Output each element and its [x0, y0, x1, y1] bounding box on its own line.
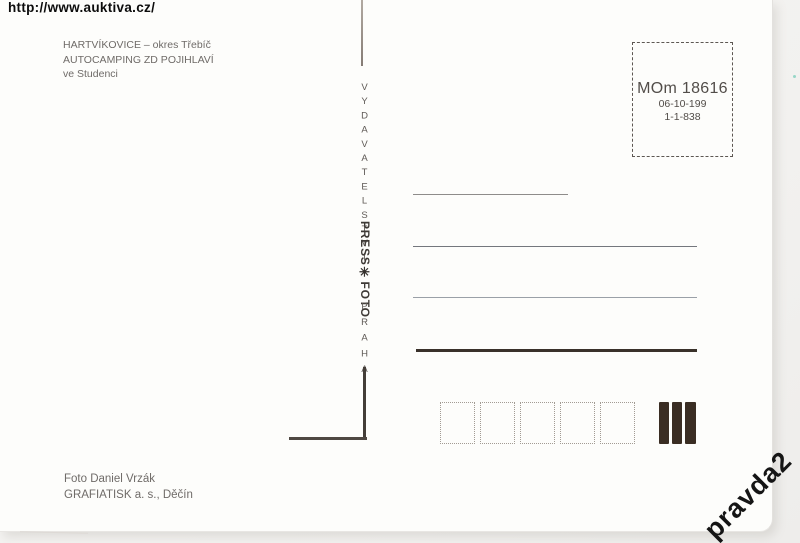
postal-code-box — [560, 402, 595, 444]
sorting-bars — [659, 402, 696, 444]
credits-block: Foto Daniel Vrzák GRAFIATISK a. s., Děčí… — [64, 472, 193, 503]
address-line-1 — [413, 194, 568, 195]
printer-credit: GRAFIATISK a. s., Děčín — [64, 488, 193, 504]
catalog-code: MOm 18616 — [637, 79, 728, 98]
logo-emblem-icon: ✳ — [358, 266, 373, 282]
postcard-back: HARTVÍKOVICE – okres Třebíč AUTOCAMPING … — [0, 0, 773, 532]
auction-site-url-watermark: http://www.auktiva.cz/ — [8, 0, 155, 15]
caption-location: ve Studenci — [63, 67, 214, 82]
postal-code-box — [440, 402, 475, 444]
postcard-scan: HARTVÍKOVICE – okres Třebíč AUTOCAMPING … — [0, 0, 800, 543]
caption-subtitle: AUTOCAMPING ZD POJIHLAVÍ — [63, 53, 214, 68]
divider-corner-horizontal — [289, 437, 367, 440]
top-divider-line — [361, 0, 363, 66]
caption-block: HARTVÍKOVICE – okres Třebíč AUTOCAMPING … — [63, 38, 214, 82]
divider-corner-vertical — [363, 367, 366, 440]
sorting-bar — [672, 402, 682, 444]
address-line-3 — [413, 297, 697, 298]
logo-press-text: PRESS — [358, 221, 372, 266]
sorting-bar — [685, 402, 696, 444]
publisher-city-vertical: PRAHA — [354, 301, 370, 380]
catalog-line2: 06-10-199 — [659, 98, 707, 111]
postal-code-box — [480, 402, 515, 444]
scan-artifact-scratch — [20, 531, 88, 533]
catalog-line3: 1-1-838 — [664, 111, 700, 124]
postal-code-box — [600, 402, 635, 444]
postal-code-boxes — [440, 402, 635, 444]
sorting-bar — [659, 402, 669, 444]
caption-title: HARTVÍKOVICE – okres Třebíč — [63, 38, 214, 53]
address-line-thick — [416, 349, 697, 352]
address-line-2 — [413, 246, 697, 247]
scan-artifact-speck — [793, 75, 796, 78]
photo-credit: Foto Daniel Vrzák — [64, 472, 193, 488]
postal-code-box — [520, 402, 555, 444]
stamp-catalog-box: MOm 18616 06-10-199 1-1-838 — [632, 42, 733, 157]
